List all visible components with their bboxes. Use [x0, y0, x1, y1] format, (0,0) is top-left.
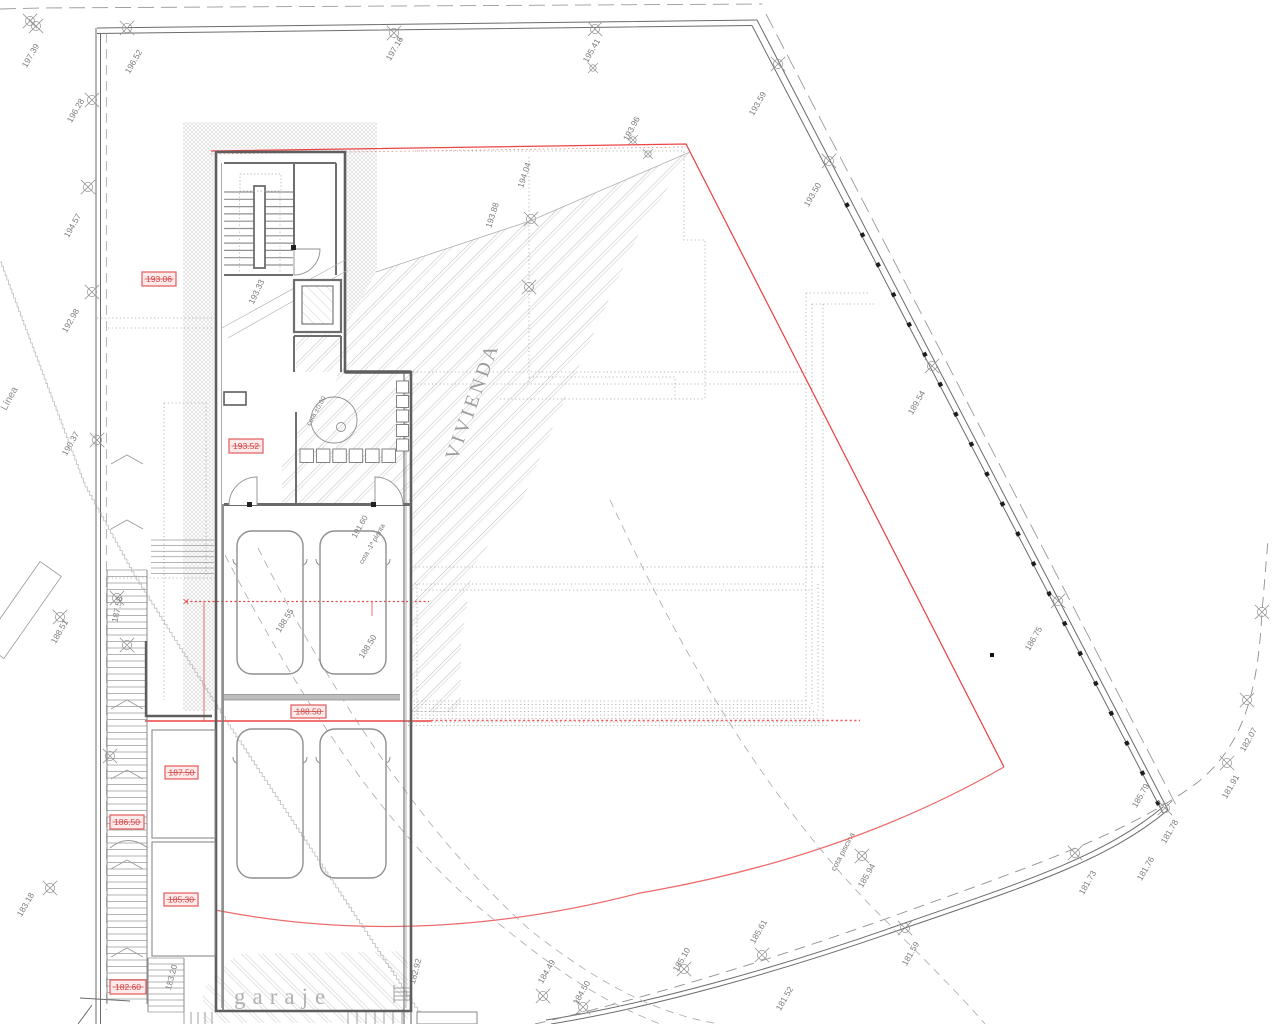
svg-text:garaje: garaje — [234, 984, 332, 1009]
